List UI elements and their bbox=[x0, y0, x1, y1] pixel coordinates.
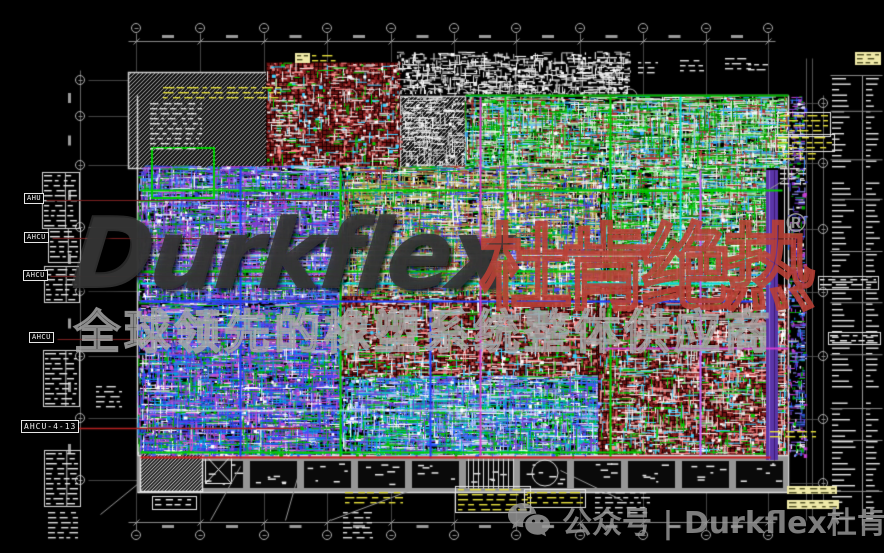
cad-floorplan-canvas bbox=[0, 0, 884, 553]
cad-viewport: AHUAHCUAHCUAHCUAHCU-4-13 Durkflex ® 杜肯绝热… bbox=[0, 0, 884, 553]
equipment-label: AHCU bbox=[24, 232, 49, 243]
equipment-label: AHCU bbox=[29, 332, 54, 343]
equipment-label: AHU bbox=[24, 193, 44, 204]
equipment-label: AHCU-4-13 bbox=[21, 420, 79, 433]
equipment-label: AHCU bbox=[23, 270, 48, 281]
